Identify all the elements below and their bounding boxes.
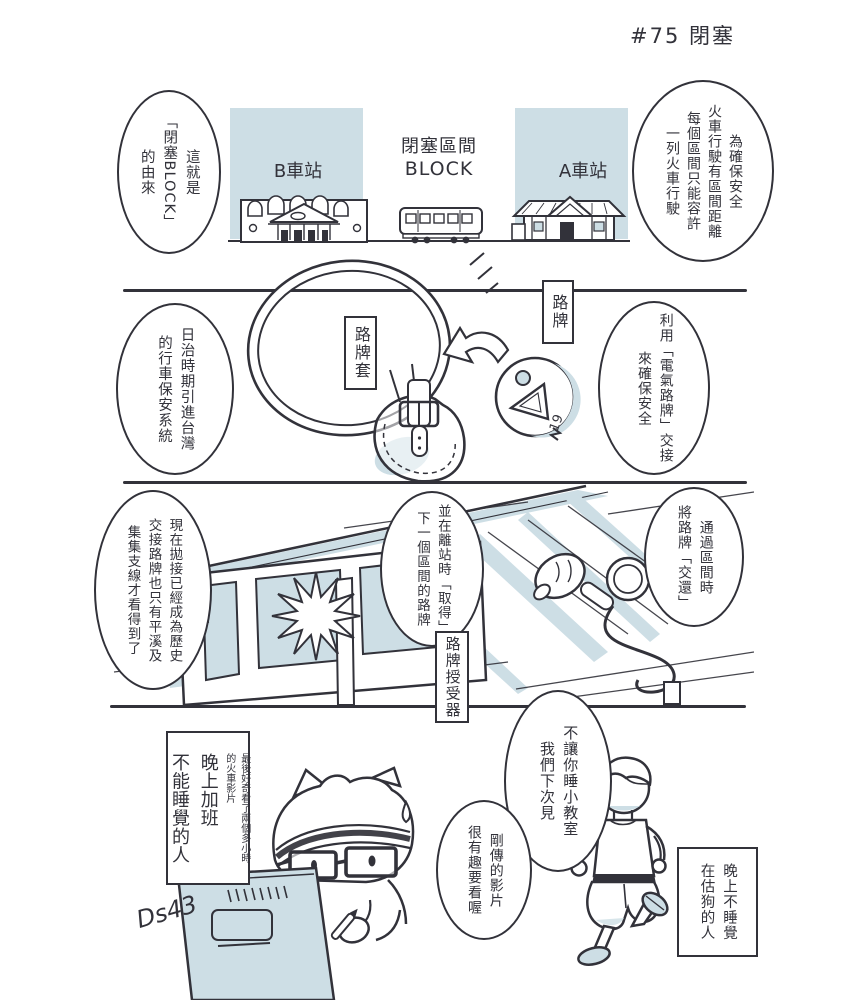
speech-bubble-token-exchange: 利用「電氣路牌」交接 來確保安全 [598,301,710,475]
speech-bubble-obtain: 並在離站時「取得」 下一個區間的路牌 [380,491,484,647]
speech-bubble-classroom-text: 不讓你睡小教室 我們下次見 [535,725,582,837]
token-receiver-labelbox: 路牌授受器 [435,631,469,723]
arrow-token-to-pouch [444,328,508,362]
station-b-label: B車站 [258,157,338,183]
cat-arm-with-pen [331,900,400,946]
speech-bubble-heritage-text: 現在拋接已經成為歷史 交接路牌也只有平溪及 集集支線才看得到了 [122,518,185,663]
comic-page: { "page": { "title": "#75 閉塞" }, "colors… [0,0,860,1000]
tablet-pouch-labelbox: 路牌套 [344,316,377,390]
speech-bubble-safety-text: 為確保安全 火車行駛有區間距離 每個區間只能容許 一列火車行駛 [661,104,745,239]
tablet-label: 路牌 [546,294,571,330]
caption-overtime-main: 晚上加班 不能睡覺的人 [164,753,222,864]
train-drawing [398,202,484,244]
speech-bubble-heritage: 現在拋接已經成為歷史 交接路牌也只有平溪及 集集支線才看得到了 [94,490,212,690]
caption-googling-box: 晚上不睡覺 在估狗的人 [677,847,758,957]
speech-bubble-history-text: 日治時期引進台灣 的行車保安系統 [153,327,198,451]
station-b-drawing [238,186,370,244]
station-a-drawing [512,192,626,244]
tablet-token-drawing: 19 [496,358,590,447]
station-a-label: A車站 [543,157,623,183]
block-section-label: 閉塞區間 BLOCK [388,132,490,180]
page-title: #75 閉塞 [630,20,735,50]
speech-bubble-safety: 為確保安全 火車行駛有區間距離 每個區間只能容許 一列火車行駛 [632,80,774,262]
caption-overtime-box: 晚上加班 不能睡覺的人 最後好奇看了兩個多小時 的火車影片 [166,731,250,885]
speech-bubble-return: 通過區間時 將路牌「交還」 [644,487,744,627]
tablet-pouch-label: 路牌套 [348,326,373,380]
speech-bubble-history: 日治時期引進台灣 的行車保安系統 [116,303,234,475]
glove-hand [527,545,592,606]
speech-bubble-return-text: 通過區間時 將路牌「交還」 [672,505,715,610]
speech-bubble-block-origin-text: 這就是 「閉塞BLOCK」 的由來 [135,114,202,230]
tablet-labelbox: 路牌 [542,280,574,344]
caption-overtime-sub: 最後好奇看了兩個多小時 的火車影片 [222,753,252,863]
speech-bubble-obtain-text: 並在離站時「取得」 下一個區間的路牌 [411,504,453,635]
speech-bubble-video-text: 剛傳的影片 很有趣要看喔 [462,825,505,915]
speech-bubble-token-exchange-text: 利用「電氣路牌」交接 來確保安全 [632,313,675,463]
monitor-back [178,868,334,1000]
speech-bubble-video: 剛傳的影片 很有趣要看喔 [436,800,532,940]
block-section-label-en: BLOCK [388,158,490,180]
block-section-label-zh: 閉塞區間 [388,132,490,158]
tablet-carrier-drawing: 19 [240,252,585,492]
speech-bubble-block-origin: 這就是 「閉塞BLOCK」 的由來 [117,90,221,254]
token-receiver-label: 路牌授受器 [440,636,463,719]
caption-googling-text: 晚上不睡覺 在估狗的人 [695,863,740,941]
